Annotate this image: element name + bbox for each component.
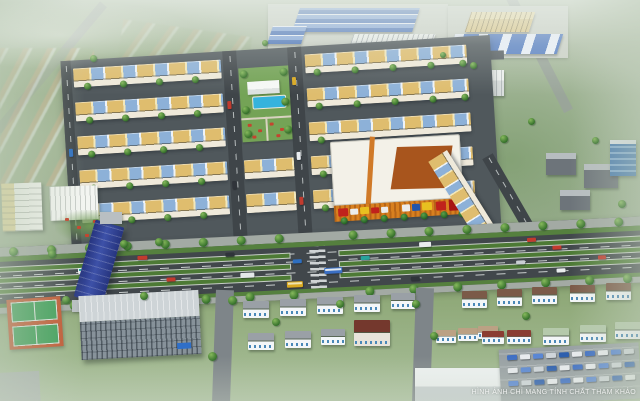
parked-car — [586, 364, 596, 370]
villa-windows — [244, 313, 268, 316]
flower-bed — [252, 135, 256, 138]
car — [552, 245, 561, 249]
villa-house — [615, 322, 640, 339]
car — [527, 238, 536, 242]
flower-bed — [270, 122, 274, 125]
parked-car — [573, 364, 583, 370]
villa-windows — [533, 299, 556, 302]
tree — [618, 200, 626, 208]
billboard — [338, 208, 348, 217]
parked-car — [559, 352, 569, 358]
tree — [522, 312, 530, 320]
parked-car — [625, 375, 635, 381]
villa-windows — [571, 297, 594, 300]
shophouse-row — [246, 191, 297, 213]
car — [296, 152, 300, 160]
palm-tree — [380, 215, 387, 222]
car — [556, 268, 565, 272]
parked-car — [599, 376, 609, 382]
tree — [120, 240, 128, 248]
billboard — [381, 207, 388, 213]
villa-windows — [463, 303, 486, 306]
factory-shed-small — [267, 26, 307, 44]
villa-windows — [616, 334, 640, 337]
parked-car — [521, 380, 531, 386]
tree — [528, 118, 535, 125]
flower-bed — [276, 134, 280, 137]
vehicle-roof-stripe — [325, 268, 341, 271]
car — [232, 181, 236, 189]
parked-car — [585, 351, 595, 357]
shophouse-row — [79, 161, 228, 189]
tree — [279, 67, 287, 75]
parked-car — [573, 377, 583, 383]
car — [598, 255, 606, 259]
tennis-court-1 — [11, 299, 58, 322]
car — [166, 277, 175, 281]
parked-car — [598, 363, 608, 369]
villa-windows — [459, 336, 477, 339]
industrial-box-1 — [546, 153, 576, 175]
sports-hall-facade — [80, 316, 202, 360]
tree — [242, 106, 250, 114]
parked-car — [508, 368, 518, 374]
villa-windows — [483, 339, 503, 342]
parked-car — [586, 377, 596, 383]
tree — [244, 130, 252, 138]
villa-windows — [508, 339, 530, 342]
tree — [470, 62, 477, 69]
parked-car — [534, 379, 544, 385]
palm-tree — [440, 211, 447, 218]
flower-bed — [77, 226, 81, 229]
vehicle-roof-stripe — [288, 282, 302, 285]
car — [419, 242, 431, 248]
tree — [336, 300, 344, 308]
tree — [155, 238, 163, 246]
villa-house — [280, 299, 306, 316]
tennis-courts — [6, 296, 63, 350]
villa-house — [606, 283, 631, 300]
car — [293, 259, 302, 263]
villa-windows — [286, 343, 310, 346]
parked-car — [598, 350, 608, 356]
villa-house — [532, 287, 557, 304]
villa-windows — [437, 338, 455, 341]
palm-tree — [360, 216, 367, 223]
flower-bed — [248, 124, 252, 127]
flower-bed — [280, 128, 284, 131]
bus — [324, 267, 342, 274]
villa-house — [321, 329, 345, 345]
shophouse-row — [244, 157, 295, 179]
parked-car — [534, 366, 544, 372]
parked-car — [624, 349, 634, 355]
car — [292, 77, 296, 85]
car — [361, 256, 370, 260]
car — [411, 276, 420, 280]
tree — [440, 52, 446, 58]
billboard — [422, 202, 432, 211]
tree — [272, 318, 280, 326]
tree — [239, 70, 247, 78]
villa-windows — [249, 345, 273, 348]
tree — [262, 40, 268, 46]
car — [516, 260, 525, 264]
parked-car — [611, 349, 621, 355]
car — [227, 101, 231, 109]
parked-car — [612, 375, 622, 381]
flower-bed — [65, 218, 69, 221]
villa-house — [570, 285, 595, 302]
park-path-vertical — [265, 117, 268, 141]
villa-house — [354, 295, 380, 312]
south-road-west — [212, 290, 234, 401]
aerial-render-scene: HÌNH ẢNH CHỈ MANG TÍNH CHẤT THAM KHẢO — [0, 0, 640, 401]
parked-car — [520, 354, 530, 360]
shophouse-row — [73, 60, 222, 88]
tree — [592, 137, 599, 144]
bus — [287, 281, 303, 288]
parked-car — [624, 362, 634, 368]
palm-tree — [400, 213, 407, 220]
billboard — [371, 207, 379, 213]
parked-car — [560, 365, 570, 371]
tree — [208, 352, 217, 361]
tree — [284, 125, 292, 133]
villa-house — [285, 331, 311, 348]
sports-hall-sign — [177, 342, 191, 349]
villa-windows — [581, 337, 605, 340]
villa-house — [458, 328, 478, 341]
car — [225, 252, 234, 256]
billboard — [412, 204, 420, 211]
parked-car — [547, 366, 557, 372]
villa-windows — [281, 311, 305, 314]
watermark-text: HÌNH ẢNH CHỈ MANG TÍNH CHẤT THAM KHẢO — [472, 389, 636, 396]
parked-car — [521, 367, 531, 373]
villa-house — [507, 330, 531, 344]
villa-house — [497, 289, 522, 306]
tree — [412, 300, 420, 308]
villa-house — [462, 291, 487, 308]
parked-car — [508, 381, 518, 387]
tree — [281, 97, 289, 105]
villa-windows — [355, 307, 379, 310]
villa-house — [580, 325, 606, 342]
billboard — [436, 201, 447, 211]
villa-windows — [544, 340, 568, 343]
villa-house — [391, 293, 415, 309]
tree — [48, 250, 56, 258]
blue-glass-building — [610, 140, 636, 176]
villa-windows — [392, 304, 414, 307]
villa-windows — [498, 301, 521, 304]
tennis-court-2 — [12, 323, 59, 346]
villa-house — [248, 333, 274, 350]
villa-windows — [318, 309, 342, 312]
flower-bed — [258, 129, 262, 132]
parked-car — [507, 355, 517, 361]
villa-house — [436, 330, 456, 343]
tree — [228, 296, 237, 305]
bus — [240, 272, 254, 278]
car — [299, 197, 303, 205]
tree — [500, 135, 508, 143]
shophouse-row — [304, 45, 467, 74]
billboard — [350, 208, 358, 214]
villa-house — [482, 331, 504, 344]
tree — [62, 296, 70, 304]
parked-car — [611, 362, 621, 368]
parked-car — [572, 351, 582, 357]
tree — [140, 292, 148, 300]
villa-windows — [607, 295, 630, 298]
clubhouse — [247, 80, 280, 95]
palm-tree — [341, 217, 348, 224]
corner-road-southwest — [0, 371, 41, 401]
parked-car — [547, 379, 557, 385]
big-house-dark-roof — [354, 320, 390, 346]
industrial-box-3 — [560, 190, 590, 210]
factory-office-tan — [465, 12, 535, 32]
tree — [430, 332, 438, 340]
villa-house — [243, 301, 269, 318]
parked-car — [546, 353, 556, 359]
billboard — [402, 204, 410, 211]
parked-car — [533, 353, 543, 359]
flower-bed — [85, 234, 89, 237]
shophouse-row — [77, 127, 226, 155]
car — [137, 256, 147, 260]
villa-windows — [322, 340, 344, 343]
overpass-landing-north — [100, 212, 122, 224]
palm-tree — [420, 212, 427, 219]
central-park — [238, 65, 292, 142]
shophouse-row — [307, 78, 470, 107]
shophouse-row — [75, 93, 224, 121]
factory-warehouse-blue-roof — [292, 8, 420, 32]
tree — [90, 55, 97, 62]
billboard — [360, 207, 369, 215]
midrise-building-yellow — [1, 182, 43, 231]
villa-house — [543, 328, 569, 345]
car — [69, 149, 73, 157]
parked-car — [560, 378, 570, 384]
sports-hall-building — [78, 290, 201, 360]
